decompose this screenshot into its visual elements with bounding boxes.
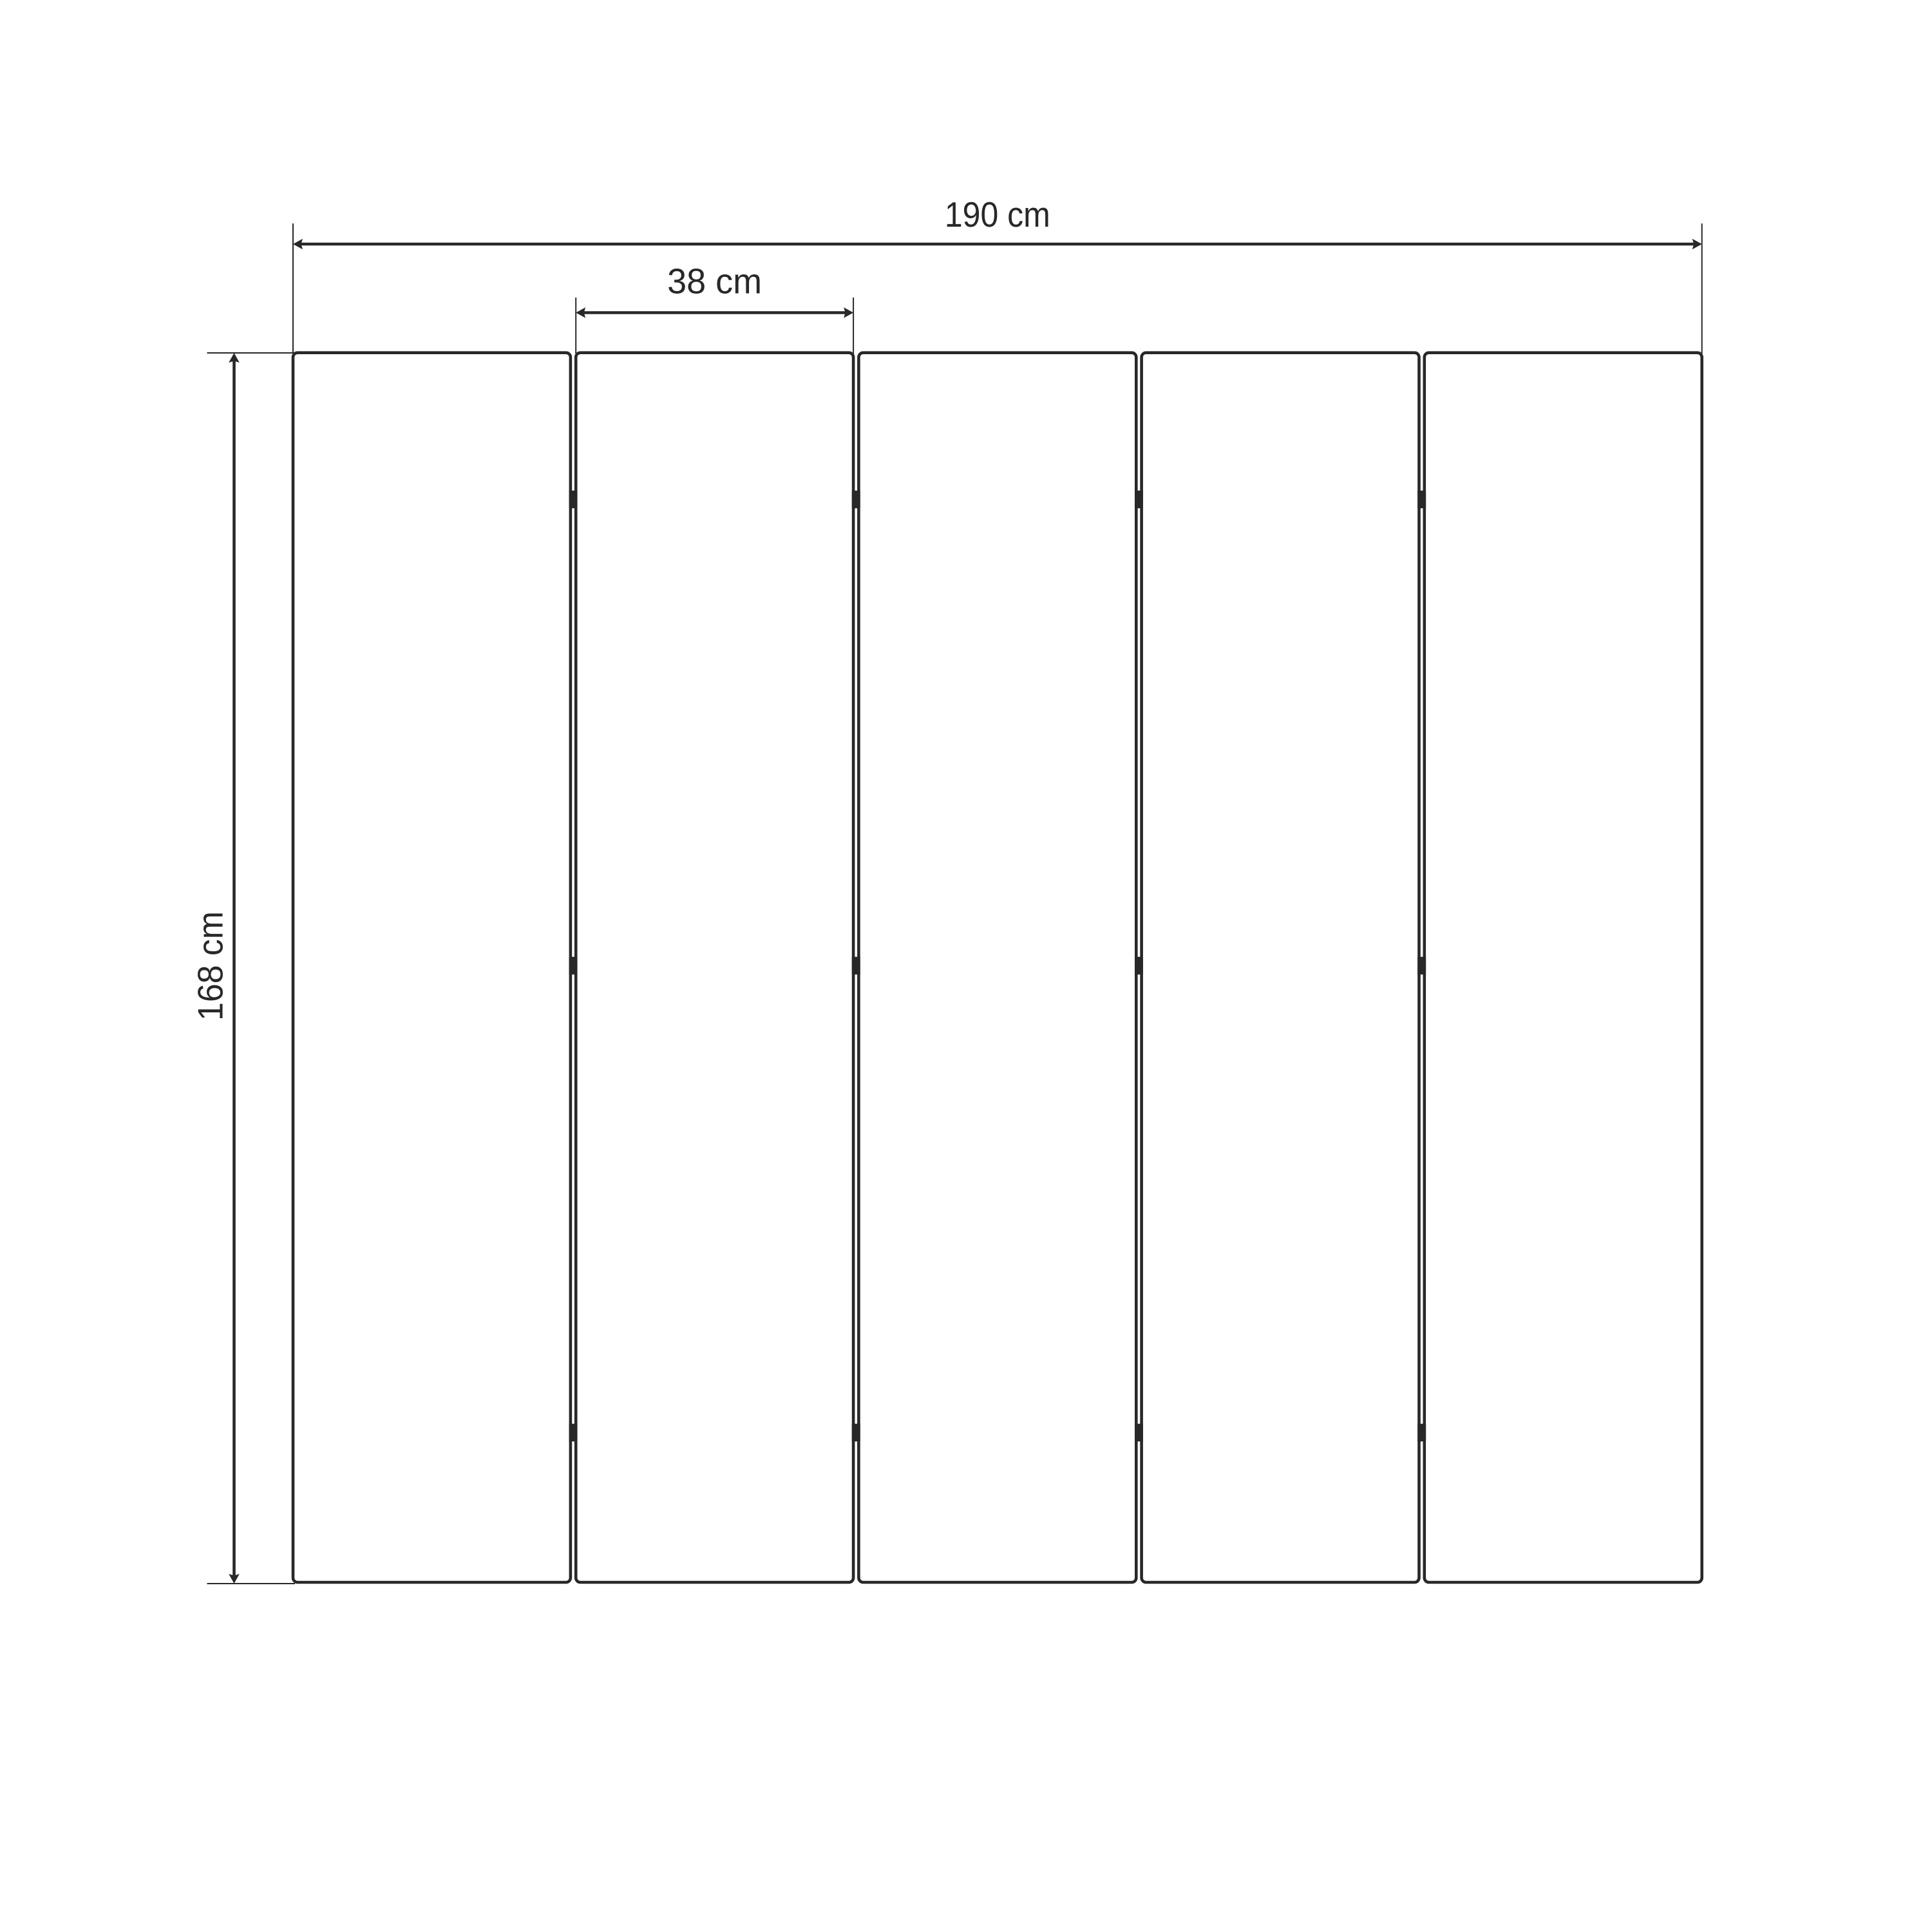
- svg-text:190 cm: 190 cm: [945, 194, 1050, 234]
- svg-text:38 cm: 38 cm: [667, 261, 762, 301]
- svg-text:168 cm: 168 cm: [191, 911, 231, 1021]
